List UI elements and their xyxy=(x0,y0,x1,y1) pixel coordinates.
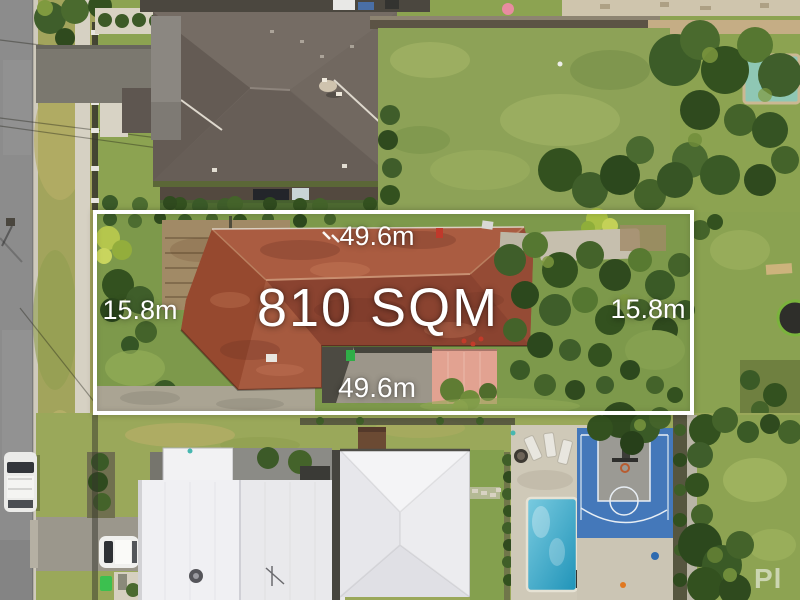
swimming-pool-bottom xyxy=(527,498,577,591)
white-house-left xyxy=(138,447,345,600)
dimension-label-bottom: 49.6m xyxy=(338,374,416,402)
sandstone-wall xyxy=(648,20,800,34)
basketball-court xyxy=(577,402,673,538)
roof-gap xyxy=(332,450,340,600)
parked-van xyxy=(4,452,40,512)
bottom-properties xyxy=(4,402,800,600)
parked-car xyxy=(99,536,139,568)
dimension-label-left: 15.8m xyxy=(102,297,177,324)
pool-float-ring xyxy=(502,3,514,15)
right-neighbour-yard xyxy=(690,212,800,420)
side-lawn-path xyxy=(470,450,515,600)
white-house-right xyxy=(340,450,470,597)
power-pole xyxy=(6,218,15,226)
rooftop-object xyxy=(319,80,337,92)
orange-cone xyxy=(620,582,626,588)
aerial-photo-canvas: 49.6m 810 SQM 15.8m 15.8m 49.6m Pl xyxy=(0,0,800,600)
watermark: Pl xyxy=(754,563,782,595)
trampoline xyxy=(778,301,800,335)
dimension-label-right: 15.8m xyxy=(610,296,685,323)
blue-toy xyxy=(651,552,659,560)
area-label: 810 SQM xyxy=(257,281,499,335)
wheelie-bin xyxy=(100,576,112,591)
top-house-roof xyxy=(153,12,397,181)
bench xyxy=(766,263,793,275)
planter-hedge xyxy=(87,452,115,518)
dimension-label-top: 49.6m xyxy=(339,223,414,250)
porch-roof xyxy=(122,88,152,133)
